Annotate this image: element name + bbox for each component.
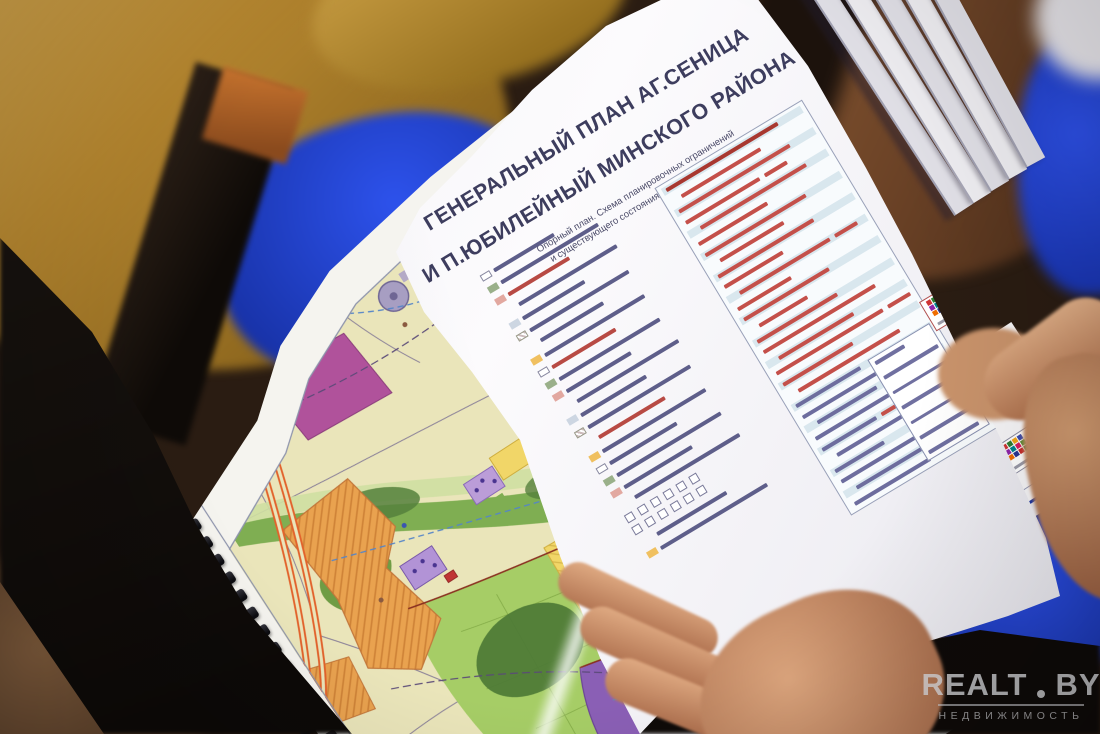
watermark-rule: [938, 704, 1084, 707]
watermark-brand-left: REALT: [921, 669, 1027, 700]
institute-logo-mosaic: [926, 285, 963, 317]
watermark-brand-right: BY: [1055, 669, 1100, 700]
watermark-dot: [1037, 690, 1045, 698]
logo-caption: [937, 307, 964, 325]
watermark-tagline: НЕДВИЖИМОСТЬ: [936, 710, 1086, 722]
table-inset-row: [874, 344, 905, 365]
table-inset-row: [883, 344, 939, 379]
photo-scene: ГЕНЕРАЛЬНЫЙ ПЛАН АГ.СЕНИЦА И П.ЮБИЛЕЙНЫЙ…: [0, 0, 1100, 734]
watermark: REALT BY НЕДВИЖИМОСТЬ: [936, 669, 1086, 723]
watermark-brand: REALT BY: [936, 669, 1086, 700]
